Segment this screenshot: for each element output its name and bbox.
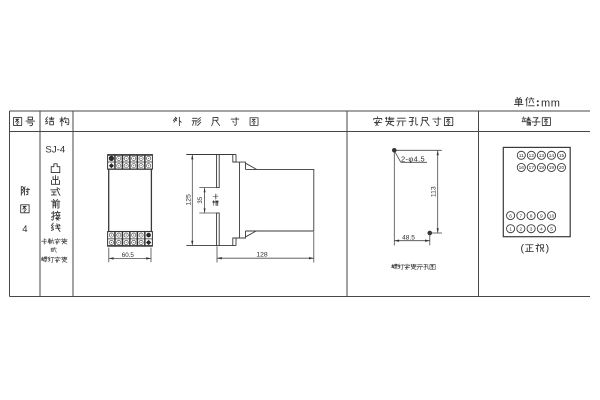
svg-text:8: 8 (530, 213, 533, 219)
svg-text:14: 14 (549, 153, 555, 159)
svg-text:2-φ4.5: 2-φ4.5 (401, 154, 425, 163)
svg-text:5: 5 (550, 226, 553, 232)
svg-text:10: 10 (549, 213, 555, 219)
svg-text:13: 13 (539, 153, 545, 159)
svg-text:SJ-4: SJ-4 (45, 144, 65, 155)
svg-text:125: 125 (185, 194, 192, 206)
svg-text:60.5: 60.5 (122, 252, 135, 259)
svg-text:9: 9 (540, 213, 543, 219)
svg-text:mm: mm (541, 98, 561, 110)
svg-text:20: 20 (559, 165, 565, 171)
svg-text:128: 128 (256, 252, 268, 259)
svg-text:16: 16 (519, 165, 525, 171)
svg-text:15: 15 (559, 153, 565, 159)
svg-text:17: 17 (529, 165, 535, 171)
svg-text:6: 6 (509, 213, 512, 219)
svg-text:2: 2 (520, 226, 523, 232)
svg-text:(: ( (521, 243, 525, 255)
svg-text:7: 7 (520, 213, 523, 219)
svg-text:3: 3 (530, 226, 533, 232)
svg-text:12: 12 (529, 153, 535, 159)
svg-text:4: 4 (22, 224, 27, 235)
svg-text:1: 1 (509, 226, 512, 232)
svg-text:): ) (546, 243, 550, 255)
svg-text:4: 4 (540, 226, 543, 232)
svg-text:11: 11 (519, 153, 524, 159)
svg-text:19: 19 (549, 165, 555, 171)
svg-text:35: 35 (198, 196, 204, 203)
svg-text:48.5: 48.5 (402, 235, 415, 242)
svg-text:113: 113 (430, 186, 437, 197)
svg-text:18: 18 (539, 165, 545, 171)
